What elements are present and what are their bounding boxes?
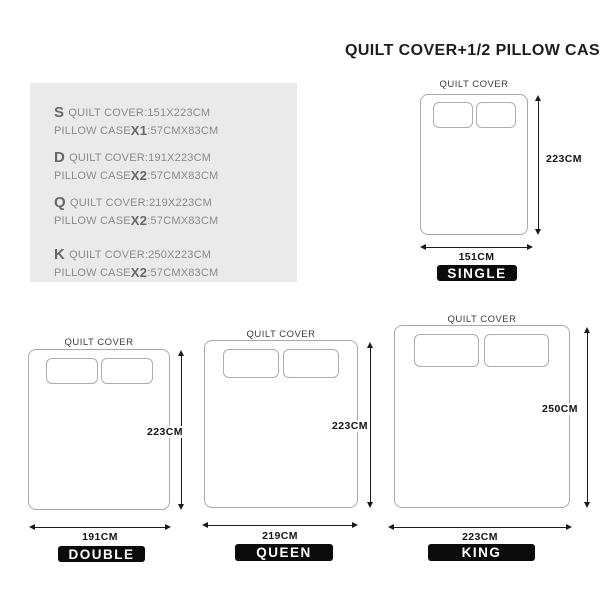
size-letter: D	[54, 149, 65, 166]
quilt-spec: QUILT COVER:151X223CM	[68, 107, 210, 119]
pillow-label: PILLOW CASE	[54, 125, 131, 137]
pillow-dims: :57CMX83CM	[147, 125, 218, 137]
width-arrow-icon	[202, 521, 358, 530]
specs-box: SQUILT COVER:151X223CM PILLOW CASEX1:57C…	[30, 83, 297, 282]
size-letter: K	[54, 246, 65, 263]
pillow-qty: X2	[131, 265, 148, 280]
quilt-cover-label: QUILT COVER	[420, 79, 528, 90]
quilt-cover-label: QUILT COVER	[204, 329, 358, 340]
quilt-spec: QUILT COVER:219X223CM	[70, 197, 212, 209]
width-dimension: 151CM	[420, 251, 533, 263]
pillow-label: PILLOW CASE	[54, 215, 131, 227]
quilt-cover-label: QUILT COVER	[394, 314, 570, 325]
spec-entry-double: DQUILT COVER:191X223CM PILLOW CASEX2:57C…	[54, 149, 297, 184]
quilt-cover-label: QUILT COVER	[28, 337, 170, 348]
height-arrow-icon	[534, 95, 543, 235]
size-badge-king: KING	[428, 544, 535, 561]
pillow-label: PILLOW CASE	[54, 170, 131, 182]
height-dimension: 223CM	[145, 426, 185, 438]
width-dimension: 223CM	[388, 531, 572, 543]
pillow-shape	[283, 349, 339, 378]
width-dimension: 219CM	[202, 530, 358, 542]
bed-outline	[420, 94, 528, 235]
pillow-shape	[433, 102, 473, 128]
pillow-label: PILLOW CASE	[54, 267, 131, 279]
spec-entry-queen: QQUILT COVER:219X223CM PILLOW CASEX2:57C…	[54, 194, 297, 229]
pillow-dims: :57CMX83CM	[147, 170, 218, 182]
pillow-dims: :57CMX83CM	[147, 267, 218, 279]
pillow-qty: X2	[131, 168, 148, 183]
width-dimension: 191CM	[29, 531, 171, 543]
pillow-qty: X1	[131, 123, 148, 138]
height-dimension: 250CM	[540, 403, 580, 415]
pillow-qty: X2	[131, 213, 148, 228]
size-letter: S	[54, 104, 64, 121]
height-dimension: 223CM	[330, 420, 370, 432]
pillow-shape	[46, 358, 98, 384]
pillow-shape	[101, 358, 153, 384]
page-title: QUILT COVER+1/2 PILLOW CASE	[345, 42, 600, 60]
bed-outline	[394, 325, 570, 508]
size-badge-queen: QUEEN	[235, 544, 333, 561]
pillow-shape	[484, 334, 549, 367]
height-dimension: 223CM	[544, 153, 584, 165]
pillow-shape	[223, 349, 279, 378]
size-badge-double: DOUBLE	[58, 546, 145, 562]
pillow-shape	[476, 102, 516, 128]
pillow-dims: :57CMX83CM	[147, 215, 218, 227]
pillow-shape	[414, 334, 479, 367]
size-chart-infographic: QUILT COVER+1/2 PILLOW CASE SQUILT COVER…	[0, 0, 600, 600]
quilt-spec: QUILT COVER:191X223CM	[69, 152, 211, 164]
size-letter: Q	[54, 194, 66, 211]
spec-entry-single: SQUILT COVER:151X223CM PILLOW CASEX1:57C…	[54, 104, 297, 139]
size-badge-single: SINGLE	[437, 265, 517, 281]
height-arrow-icon	[583, 327, 592, 508]
spec-entry-king: KQUILT COVER:250X223CM PILLOW CASEX2:57C…	[54, 246, 297, 281]
quilt-spec: QUILT COVER:250X223CM	[69, 249, 211, 261]
